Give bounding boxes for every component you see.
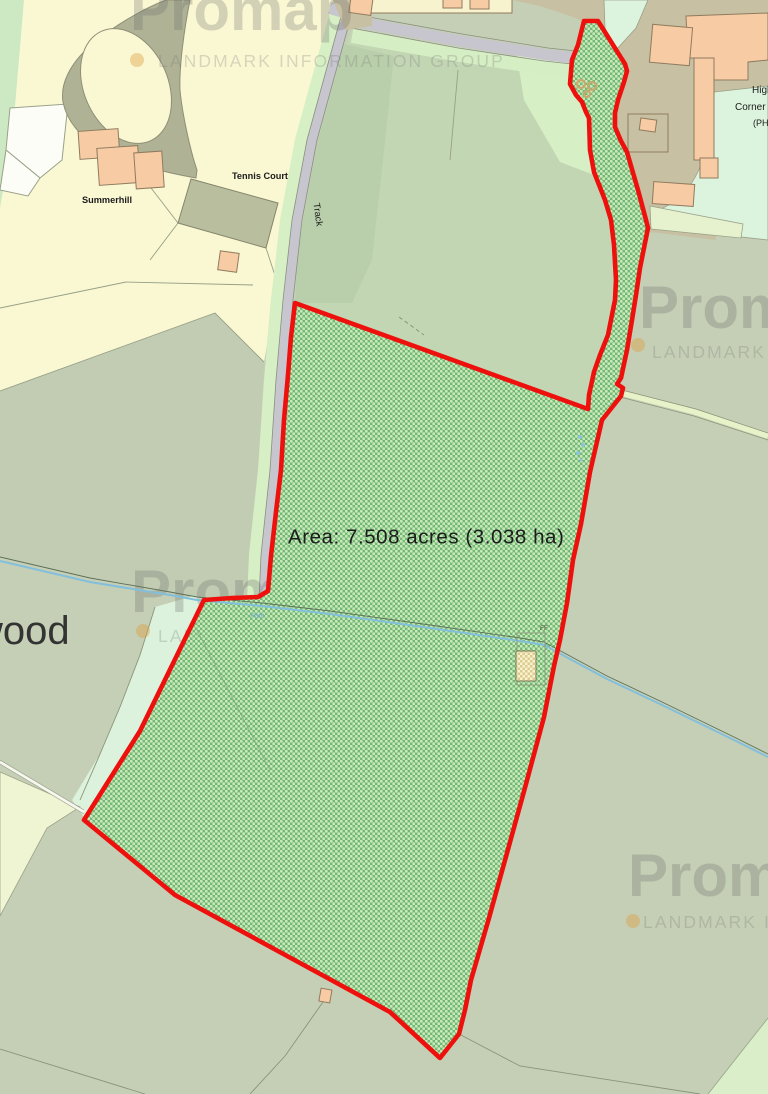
svg-text:Area: 7.508 acres (3.038 ha): Area: 7.508 acres (3.038 ha): [288, 526, 564, 549]
svg-text:wood: wood: [0, 609, 70, 653]
svg-text:Promap: Promap: [628, 842, 768, 909]
svg-text:LANDMARK INFORMATION GROUP: LANDMARK INFORMATION GROUP: [652, 342, 768, 362]
svg-text:Summerhill: Summerhill: [82, 195, 132, 205]
svg-text:Promap: Promap: [130, 0, 353, 43]
svg-text:Corner: Corner: [735, 102, 766, 113]
svg-text:High: High: [752, 85, 768, 96]
svg-text:Promap: Promap: [639, 274, 768, 341]
svg-text:(PH: (PH: [753, 118, 768, 128]
svg-text:LANDMARK INFORMATION GROUP: LANDMARK INFORMATION GROUP: [643, 912, 768, 932]
svg-text:Path: Path: [250, 613, 265, 620]
svg-text:FF: FF: [540, 625, 548, 632]
svg-text:Tennis Court: Tennis Court: [232, 171, 288, 181]
svg-text:LANDMARK INFORMATION GROUP: LANDMARK INFORMATION GROUP: [158, 51, 505, 71]
